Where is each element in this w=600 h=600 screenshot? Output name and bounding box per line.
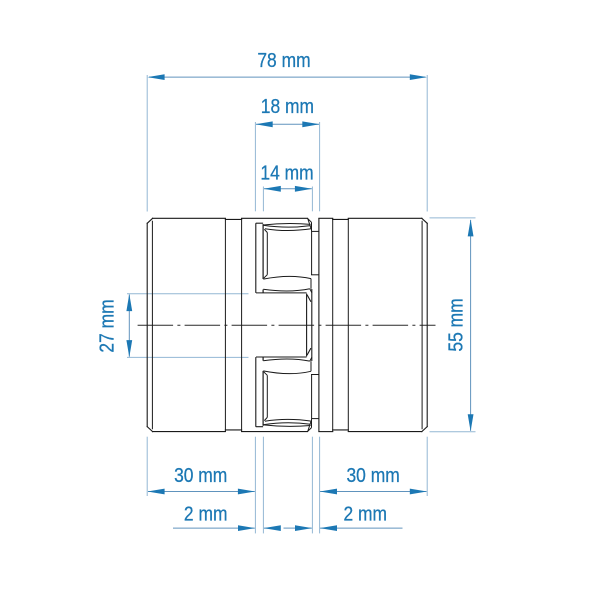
svg-text:30 mm: 30 mm xyxy=(174,465,227,488)
svg-text:78 mm: 78 mm xyxy=(257,50,310,73)
svg-text:27 mm: 27 mm xyxy=(96,299,119,352)
svg-text:2 mm: 2 mm xyxy=(344,503,388,526)
svg-text:18 mm: 18 mm xyxy=(261,96,314,119)
svg-text:30 mm: 30 mm xyxy=(346,465,399,488)
svg-text:2 mm: 2 mm xyxy=(184,503,228,526)
svg-text:55 mm: 55 mm xyxy=(445,298,468,351)
svg-text:14 mm: 14 mm xyxy=(260,162,313,185)
